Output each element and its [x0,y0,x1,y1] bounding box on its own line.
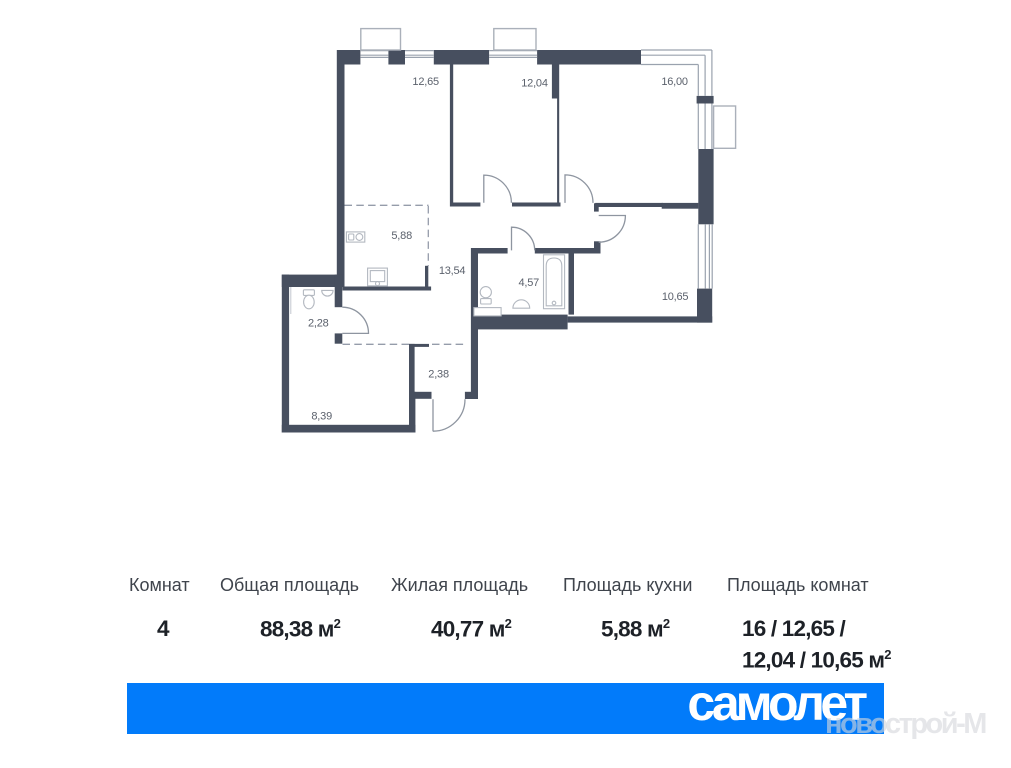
svg-text:10,65: 10,65 [662,291,689,303]
svg-text:8,39: 8,39 [311,411,332,423]
svg-text:12,65: 12,65 [412,76,439,88]
svg-text:2,38: 2,38 [428,369,449,381]
svg-text:2,28: 2,28 [308,318,329,330]
svg-text:4,57: 4,57 [518,277,539,289]
svg-text:13,54: 13,54 [439,265,466,277]
svg-text:5,88: 5,88 [391,230,412,242]
svg-text:12,04: 12,04 [521,78,548,90]
svg-text:16,00: 16,00 [661,76,688,88]
